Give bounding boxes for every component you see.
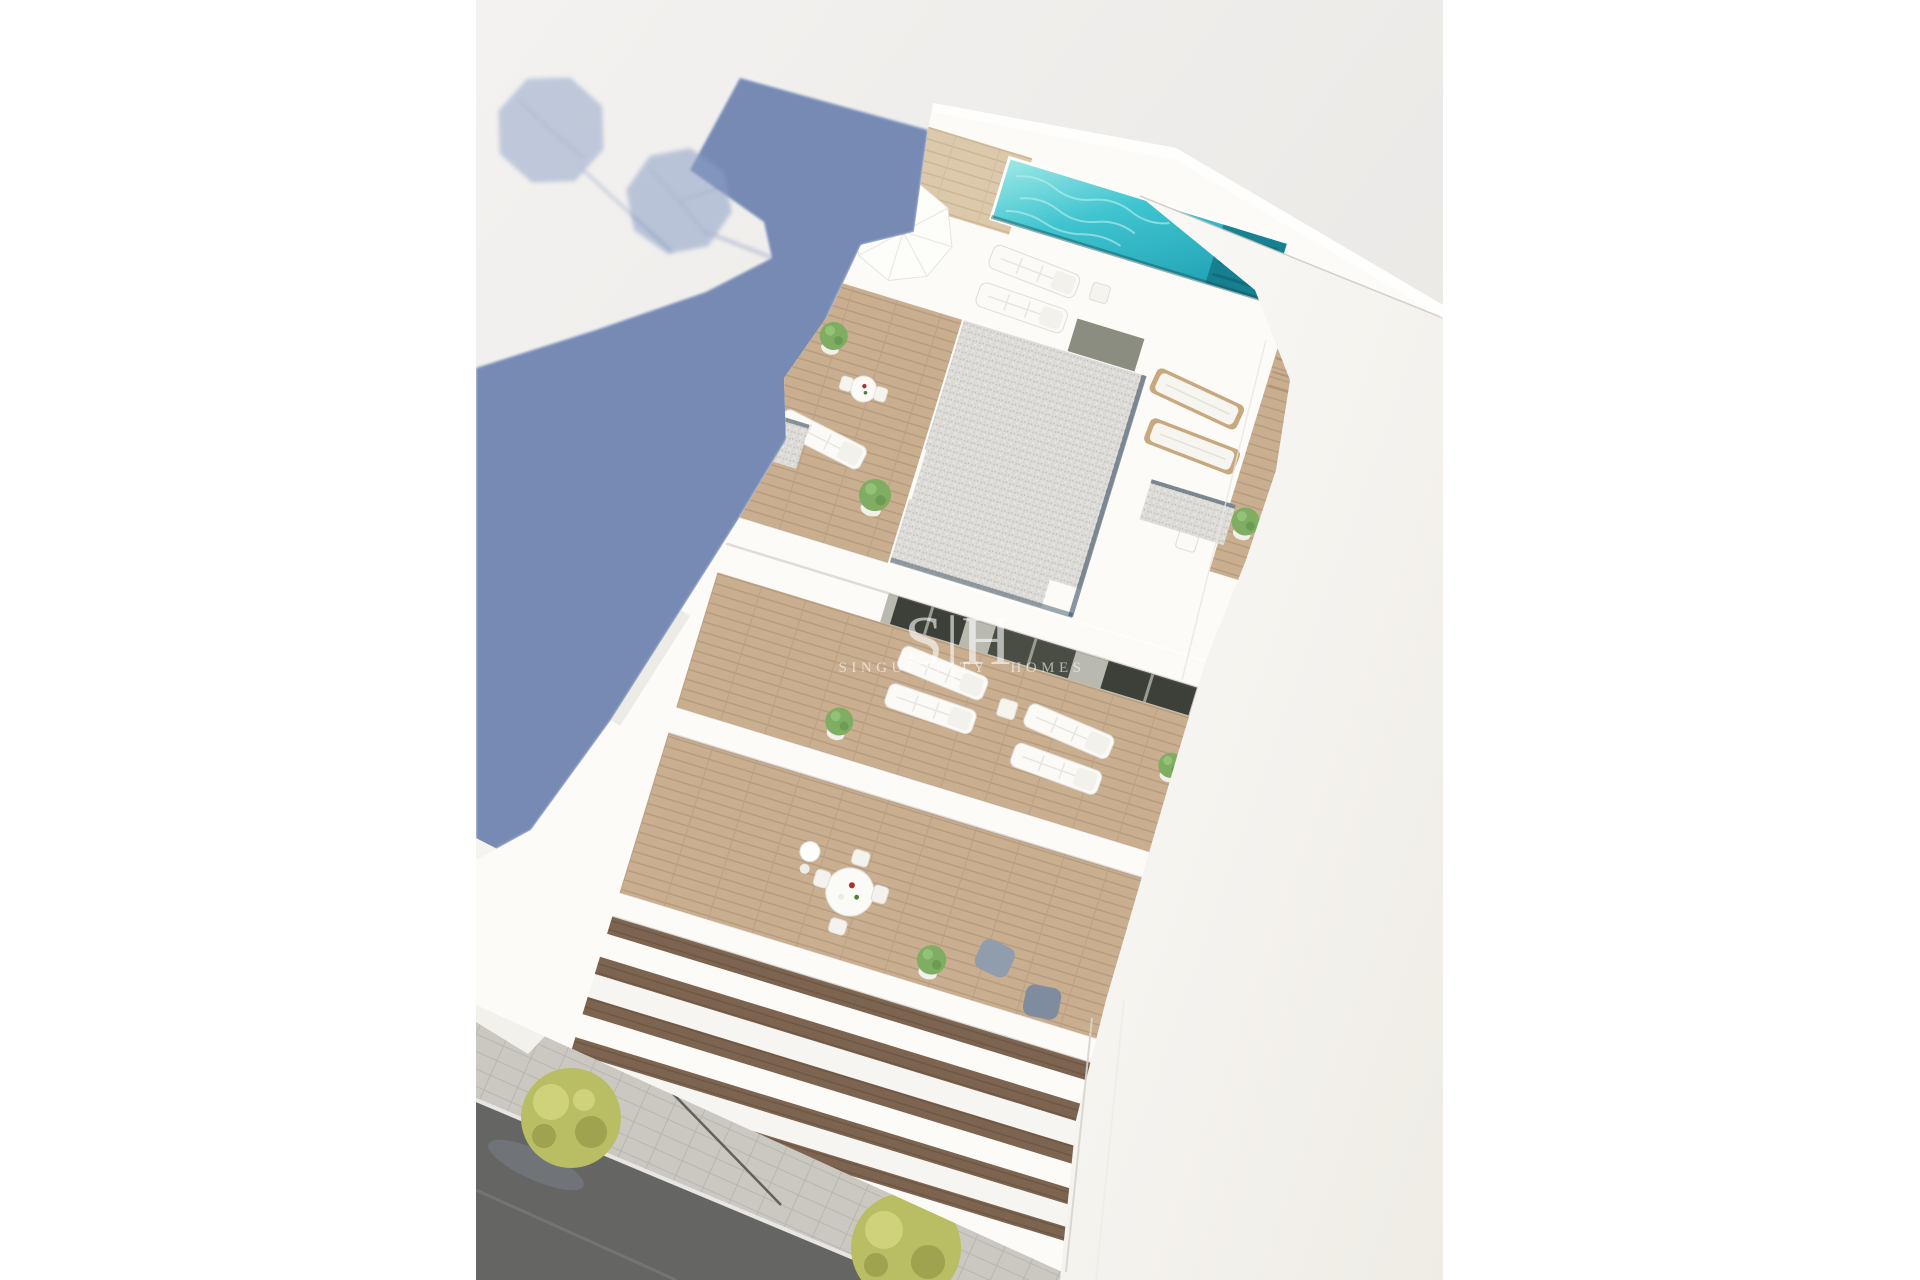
photo-frame: S|H SINGULARITY HOMES [476, 0, 1443, 1280]
tree [521, 1068, 621, 1168]
page-root: S|H SINGULARITY HOMES [0, 0, 1920, 1280]
scene-svg: S|H SINGULARITY HOMES [476, 0, 1443, 1280]
watermark-name: SINGULARITY HOMES [838, 660, 1085, 676]
